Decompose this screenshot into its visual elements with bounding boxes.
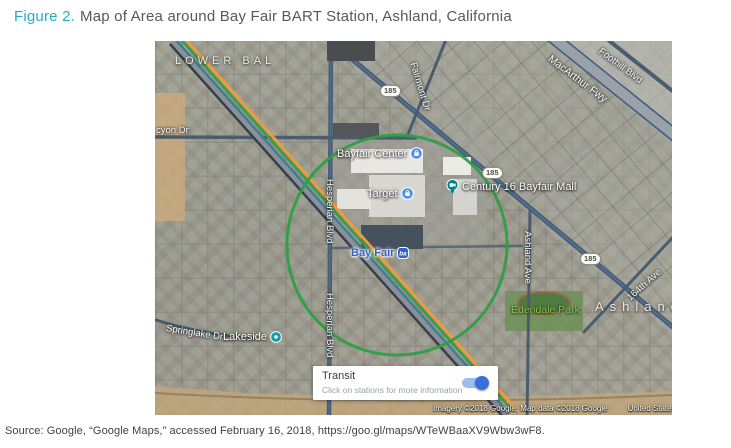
route-shield-185-south: 185 [580,253,601,265]
map-artwork [155,41,672,415]
figure-caption: Figure 2.Map of Area around Bay Fair BAR… [14,8,512,25]
map-attribution: Imagery ©2018 Google, Map data ©2018 Goo… [433,404,672,413]
ashland-ave-road [527,209,530,415]
transit-layer-card: Transit Click on stations for more infor… [313,366,498,400]
figure-title-text: Map of Area around Bay Fair BART Station… [80,8,512,25]
century-theater-building [453,179,477,215]
transit-card-title: Transit [322,370,355,382]
schoolyard-patch [155,93,185,221]
big-box-store-roof [327,41,375,61]
attribution-region: United States [628,404,672,413]
retail-strip-roof [333,123,379,137]
route-shield-185-north: 185 [380,85,401,97]
transit-card-subtitle: Click on stations for more information [322,385,462,395]
164th-ave-road [583,237,672,333]
springlake-dr-road [155,319,255,339]
map-image: LOWER BAL Ashland cyon Dr Fairmont Dr Ma… [155,41,672,415]
route-shield-185-mid: 185 [482,167,503,179]
transit-toggle[interactable] [462,378,488,388]
source-citation: Source: Google, “Google Maps,” accessed … [5,425,545,437]
attribution-credits: Imagery ©2018 Google, Map data ©2018 Goo… [433,404,608,413]
bayfair-mall-building-2 [369,175,425,217]
bayfair-mall-building [351,149,423,173]
park-running-track [518,292,570,314]
transit-toggle-knob [475,376,489,390]
figure-number: Figure 2. [14,8,75,25]
target-building [337,189,371,209]
